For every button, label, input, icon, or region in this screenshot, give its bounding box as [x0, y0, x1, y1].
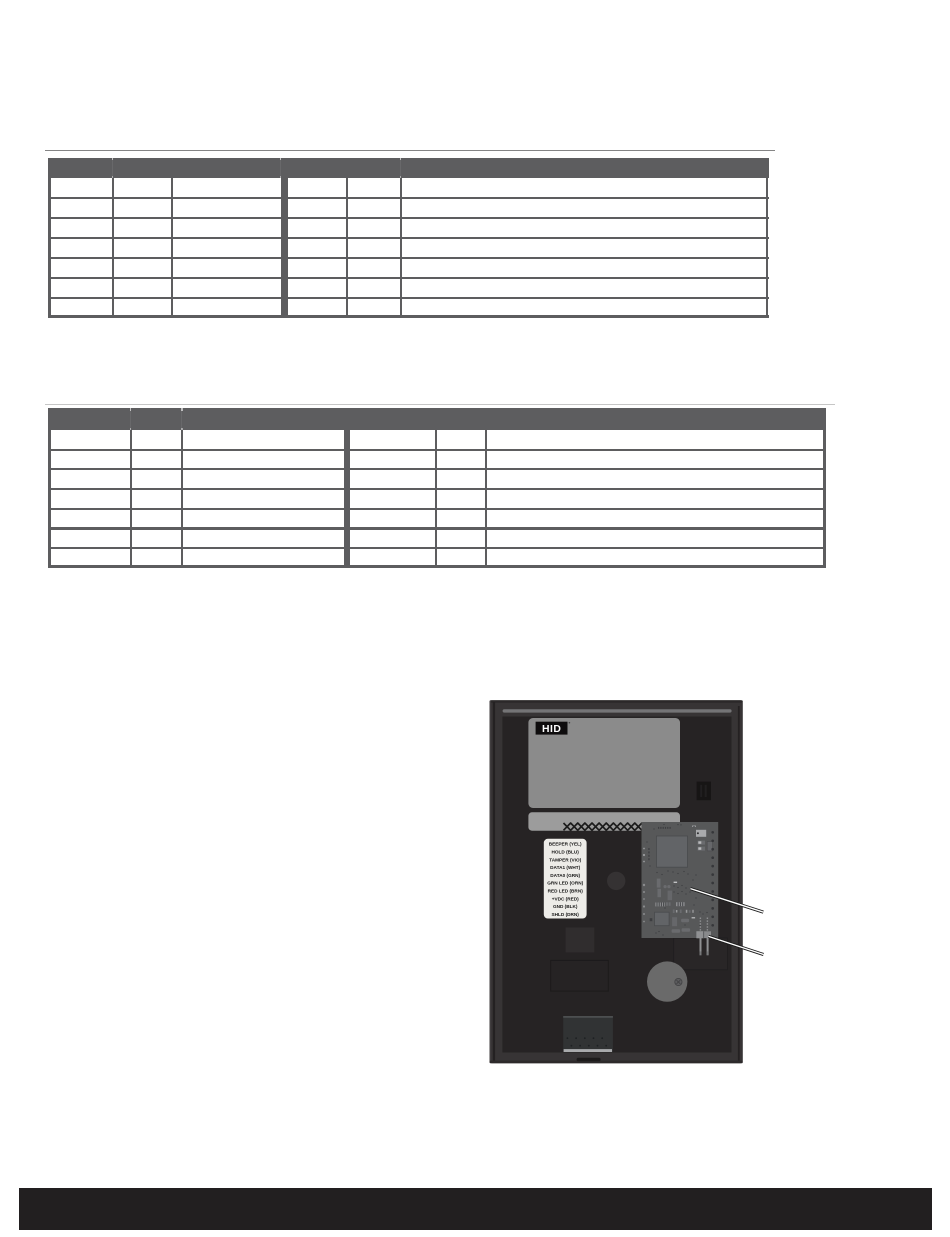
- svg-text:TAMPER (VIO): TAMPER (VIO): [549, 857, 581, 862]
- svg-text:BEEPER (YEL): BEEPER (YEL): [549, 842, 582, 847]
- svg-text:SHLD (DRN): SHLD (DRN): [552, 912, 580, 917]
- svg-text:DATA1 (WHT): DATA1 (WHT): [550, 865, 580, 870]
- svg-text:GND (BLK): GND (BLK): [553, 904, 578, 909]
- svg-text:RED LED (BRN): RED LED (BRN): [548, 889, 584, 894]
- svg-text:DATA0 (GRN): DATA0 (GRN): [550, 873, 580, 878]
- svg-text:GRN LED (ORN): GRN LED (ORN): [547, 881, 583, 886]
- svg-text:+VDC (RED): +VDC (RED): [552, 896, 579, 901]
- svg-text:HOLD (BLU): HOLD (BLU): [552, 850, 580, 855]
- svg-text:HID: HID: [542, 724, 561, 735]
